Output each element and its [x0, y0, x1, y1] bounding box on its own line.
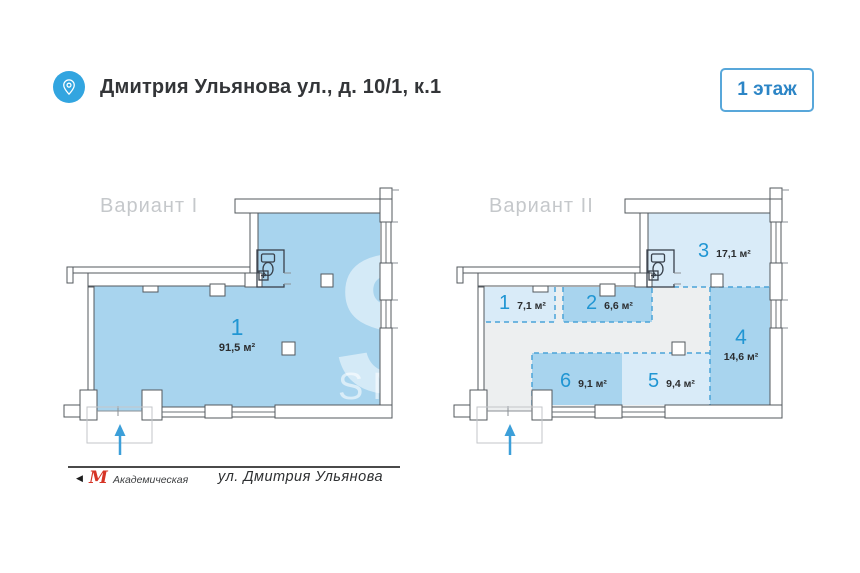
room-area: 14,6 м² [712, 351, 770, 363]
wall [478, 273, 640, 286]
room-area: 9,1 м² [578, 378, 607, 390]
room-number: 3 [698, 241, 709, 261]
shaft [321, 274, 333, 287]
wall [457, 267, 463, 283]
room-number: 1 [197, 316, 277, 339]
wall [625, 199, 782, 213]
room-label-v2-2: 2 6,6 м² [586, 293, 633, 313]
room-label-v2-4: 4 14,6 м² [712, 327, 770, 363]
floorplan-page: Дмитрия Ульянова ул., д. 10/1, к.1 1 эта… [0, 0, 860, 573]
wall [88, 273, 250, 286]
wall [595, 405, 622, 418]
room-label-v1-1: 1 91,5 м² [197, 316, 277, 354]
wall [380, 199, 392, 222]
metro-station-label: Академическая [113, 474, 188, 486]
wall-pilaster [80, 390, 97, 420]
wall [88, 287, 94, 390]
room-number: 6 [560, 371, 571, 391]
street-label: ул. Дмитрия Ульянова [218, 469, 383, 485]
wall [205, 405, 232, 418]
room-area: 17,1 м² [716, 248, 751, 260]
door-jamb [210, 284, 225, 296]
wall [478, 287, 484, 390]
footer-divider [68, 466, 400, 468]
room-label-v2-6: 6 9,1 м² [560, 371, 607, 391]
wall [454, 405, 470, 417]
room-label-v2-3: 3 17,1 м² [698, 241, 751, 261]
floorplans-drawing: .fillB{fill:#a8d4ee;} .fillL{fill:#d9ebf… [0, 0, 860, 573]
room-area: 91,5 м² [197, 342, 277, 354]
room-number: 1 [499, 293, 510, 313]
wall [235, 199, 392, 213]
wall-pilaster [533, 286, 548, 292]
wall [64, 405, 80, 417]
wall [275, 405, 392, 418]
room-area: 9,4 м² [666, 378, 695, 390]
wall [457, 267, 640, 273]
metro-m-icon: М [89, 470, 108, 487]
wall [380, 263, 392, 300]
variant2-floorplan [454, 188, 789, 455]
room-label-v2-1: 1 7,1 м² [499, 293, 546, 313]
entrance-arrow-icon [505, 424, 516, 455]
shaft [672, 342, 685, 355]
left-arrow-icon: ◀ [76, 473, 83, 484]
wall-pilaster [143, 286, 158, 292]
entrance-arrow-icon [115, 424, 126, 455]
shaft [711, 274, 723, 287]
room-area: 6,6 м² [604, 300, 633, 312]
wall-pilaster [470, 390, 487, 420]
wall [770, 263, 782, 300]
wall [67, 267, 250, 273]
room-number: 2 [586, 293, 597, 313]
room-label-v2-5: 5 9,4 м² [648, 371, 695, 391]
wall [770, 199, 782, 222]
shaft [282, 342, 295, 355]
wall [665, 405, 782, 418]
wall [770, 188, 782, 199]
room-area: 7,1 м² [517, 300, 546, 312]
wall [67, 267, 73, 283]
room-number: 5 [648, 371, 659, 391]
wall [380, 188, 392, 199]
room-number: 4 [712, 327, 770, 348]
